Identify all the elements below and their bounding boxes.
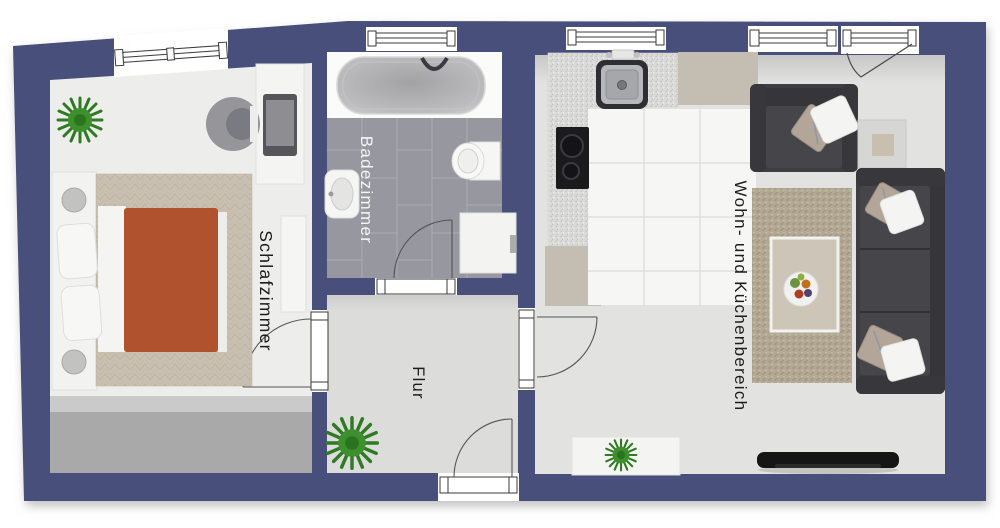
sink-tap-icon <box>329 192 334 197</box>
plant-icon <box>58 98 102 142</box>
floorplan-drawing: Schlafzimmer Badezimmer Flur Wohn- und K… <box>0 0 1000 528</box>
room-label-schlafzimmer: Schlafzimmer <box>256 230 276 352</box>
bedroom-rug <box>50 412 312 473</box>
room-label-wohn-kueche: Wohn- und Küchenbereich <box>731 181 750 412</box>
armchair <box>750 84 860 172</box>
burner-icon <box>561 135 583 157</box>
bed-footboard <box>218 212 227 352</box>
floorplan-page: Schlafzimmer Badezimmer Flur Wohn- und K… <box>0 0 1000 528</box>
sink-drain-icon <box>618 81 627 90</box>
bedroom-window <box>114 28 228 77</box>
kitchen-cabinet <box>678 52 758 105</box>
laptop-keys <box>266 100 294 146</box>
burner-icon <box>563 163 579 179</box>
bathroom-sink <box>325 170 359 218</box>
toilet <box>452 142 500 180</box>
hall-wall-shadow <box>327 295 518 311</box>
bed-sheet <box>98 206 126 352</box>
wardrobe <box>281 216 306 312</box>
living-window <box>748 26 838 52</box>
sofa <box>856 168 945 394</box>
bathroom-window <box>366 27 457 51</box>
nightstand-lamp <box>62 188 86 212</box>
bathtub <box>337 57 485 114</box>
nightstand-lamp <box>62 350 86 374</box>
room-label-badezimmer: Badezimmer <box>357 136 376 244</box>
plant-icon <box>606 440 637 471</box>
washing-machine <box>460 213 516 273</box>
bedroom-rug-light <box>50 396 312 412</box>
kitchen-tile-floor <box>588 109 756 305</box>
plant-icon <box>327 418 378 469</box>
fruit-bowl <box>784 272 818 306</box>
bed-blanket <box>124 208 218 352</box>
pillow <box>56 223 98 280</box>
kitchen-furniture <box>545 50 758 306</box>
side-table <box>858 120 906 168</box>
desk-chair <box>206 97 260 151</box>
pillow <box>61 285 103 342</box>
kitchen-window <box>566 27 666 50</box>
cooktop <box>556 127 589 189</box>
room-label-flur: Flur <box>409 366 427 400</box>
tv-sideboard <box>757 452 899 474</box>
